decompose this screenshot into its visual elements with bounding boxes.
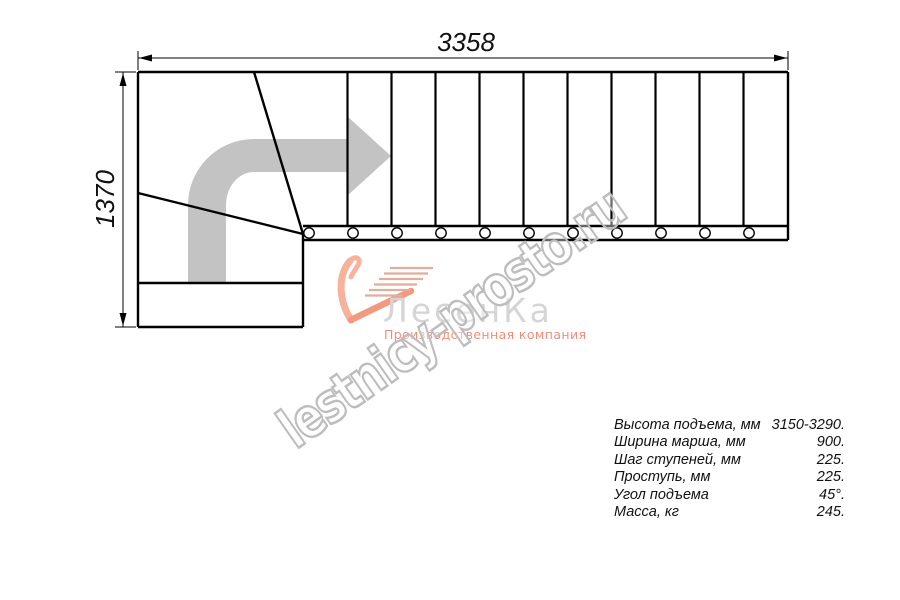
- spec-value: 900.: [817, 434, 845, 451]
- spec-value: 45°.: [819, 487, 845, 504]
- fastener-circle: [744, 228, 754, 238]
- spec-row-step-pitch: Шаг ступеней, мм 225.: [614, 452, 845, 469]
- spec-label: Угол подъема: [614, 487, 709, 504]
- fastener-circle: [656, 228, 666, 238]
- dim-arrowhead-right: [774, 55, 787, 62]
- staircase-drawing-page: 3358 1370: [0, 0, 900, 600]
- spec-value: 3150-3290.: [772, 417, 845, 434]
- fastener-circle: [348, 228, 358, 238]
- spec-label: Масса, кг: [614, 504, 679, 521]
- dimension-width-value: 3358: [437, 27, 495, 57]
- swoosh-hook-stroke: [350, 258, 359, 277]
- spec-value: 225.: [817, 452, 845, 469]
- specs-table: Высота подъема, мм 3150-3290. Ширина мар…: [614, 417, 845, 521]
- direction-arrow-shape: [188, 116, 391, 282]
- spec-label: Проступь, мм: [614, 469, 710, 486]
- fastener-circle: [304, 228, 314, 238]
- spec-row-flight-width: Ширина марша, мм 900.: [614, 434, 845, 451]
- dim-arrowhead-left: [139, 55, 152, 62]
- spec-label: Ширина марша, мм: [614, 434, 746, 451]
- fastener-circle: [392, 228, 402, 238]
- spec-label: Шаг ступеней, мм: [614, 452, 741, 469]
- spec-row-tread-depth: Проступь, мм 225.: [614, 469, 845, 486]
- spec-label: Высота подъема, мм: [614, 417, 761, 434]
- dimension-height-value: 1370: [90, 170, 120, 228]
- spec-value: 245.: [817, 504, 845, 521]
- spec-row-mass: Масса, кг 245.: [614, 504, 845, 521]
- spec-value: 225.: [817, 469, 845, 486]
- spec-row-height: Высота подъема, мм 3150-3290.: [614, 417, 845, 434]
- fastener-circle: [700, 228, 710, 238]
- swoosh-left-stroke: [341, 261, 351, 320]
- dim-arrowhead-down: [120, 313, 127, 326]
- fastener-circle: [480, 228, 490, 238]
- fastener-circle: [436, 228, 446, 238]
- dim-arrowhead-up: [120, 73, 127, 86]
- direction-arrow: [188, 116, 391, 282]
- spec-row-climb-angle: Угол подъема 45°.: [614, 487, 845, 504]
